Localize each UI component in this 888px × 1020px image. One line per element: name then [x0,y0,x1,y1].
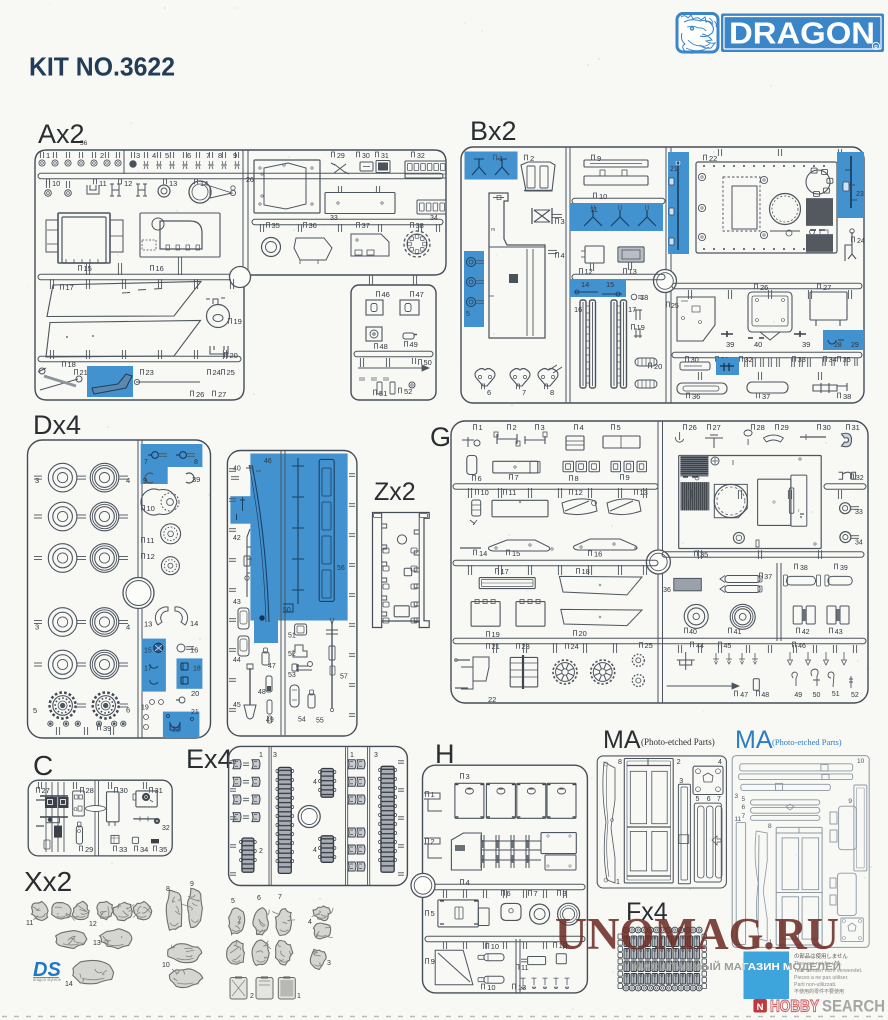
svg-text:3: 3 [136,151,140,160]
svg-text:4: 4 [313,779,317,786]
svg-text:4: 4 [313,847,317,854]
svg-text:2: 2 [513,423,517,432]
svg-text:6: 6 [487,388,491,397]
svg-text:m: m [491,227,495,233]
svg-text:1: 1 [479,423,483,432]
svg-text:4: 4 [580,423,584,432]
svg-text:2: 2 [677,759,681,766]
svg-text:38: 38 [416,221,424,230]
svg-text:1: 1 [297,993,301,1000]
svg-text:5: 5 [617,423,621,432]
svg-text:46: 46 [798,643,806,650]
svg-text:26: 26 [689,423,697,432]
svg-text:35: 35 [272,221,280,230]
svg-text:26: 26 [196,390,204,399]
svg-text:27: 27 [713,423,721,432]
svg-text:7: 7 [522,388,526,397]
svg-text:10: 10 [487,983,495,992]
svg-text:(Photo-etched Parts): (Photo-etched Parts) [772,737,842,747]
svg-text:42: 42 [233,535,241,542]
svg-text:Xx2: Xx2 [24,866,72,897]
svg-text:39: 39 [802,340,810,349]
svg-text:29: 29 [781,423,789,432]
svg-text:18: 18 [68,360,76,369]
svg-text:15: 15 [84,264,92,273]
svg-text:9: 9 [597,154,601,163]
svg-text:51: 51 [379,389,387,398]
svg-text:30: 30 [691,355,699,364]
svg-text:G: G [430,422,451,452]
svg-text:44: 44 [233,657,241,664]
svg-text:21: 21 [191,709,199,716]
svg-text:21: 21 [492,642,500,651]
svg-text:6: 6 [507,889,511,898]
svg-text:46: 46 [382,290,390,299]
svg-text:UNOMAG.RU: UNOMAG.RU [555,909,839,959]
svg-text:33: 33 [855,509,863,516]
svg-text:7: 7 [144,459,148,466]
svg-text:31: 31 [381,153,389,160]
svg-text:10: 10 [147,504,155,513]
svg-text:8: 8 [575,474,579,483]
svg-text:44: 44 [696,643,704,650]
svg-text:9: 9 [233,151,237,160]
svg-text:11: 11 [590,205,598,214]
svg-text:34: 34 [430,215,438,222]
svg-text:25: 25 [645,641,653,650]
svg-text:5: 5 [165,151,169,160]
svg-text:3: 3 [374,752,378,759]
svg-text:3: 3 [466,772,470,781]
svg-text:MA: MA [603,726,641,754]
svg-text:16: 16 [156,264,164,273]
svg-text:12: 12 [124,179,132,188]
svg-text:3: 3 [327,960,331,967]
svg-text:13: 13 [144,620,152,629]
svg-text:N: N [757,1002,764,1013]
svg-text:R: R [874,45,878,51]
svg-text:19: 19 [637,323,645,332]
svg-text:29: 29 [851,342,859,349]
svg-text:14: 14 [479,549,487,558]
svg-text:11: 11 [735,816,742,823]
svg-text:24: 24 [857,238,865,245]
svg-text:6: 6 [187,151,191,160]
svg-text:36: 36 [692,392,700,401]
svg-text:39: 39 [192,475,200,484]
svg-text:6: 6 [478,474,482,483]
svg-text:19: 19 [234,317,242,326]
svg-text:39: 39 [840,565,848,572]
svg-text:28: 28 [834,342,842,349]
svg-text:48: 48 [761,692,769,699]
svg-text:Zx2: Zx2 [374,478,416,506]
svg-text:1: 1 [259,752,263,759]
svg-text:45: 45 [233,702,241,709]
svg-text:10: 10 [491,942,499,951]
svg-text:54: 54 [298,717,306,724]
svg-text:42: 42 [802,629,810,636]
svg-text:7: 7 [278,894,282,901]
svg-text:39: 39 [726,340,734,349]
svg-text:DRAGON: DRAGON [729,16,875,51]
svg-text:3: 3 [541,423,545,432]
svg-text:МАСШТАБНЫЙ МАГАЗИН МОДЕЛЕЙ: МАСШТАБНЫЙ МАГАЗИН МОДЕЛЕЙ [633,960,841,973]
svg-text:33: 33 [330,215,338,222]
svg-text:19: 19 [141,705,149,712]
svg-text:Pieces a ne pas utiliser.: Pieces a ne pas utiliser. [794,975,849,981]
svg-text:33: 33 [798,355,806,364]
svg-text:23: 23 [522,642,530,651]
svg-text:43: 43 [835,629,843,636]
svg-text:4: 4 [466,878,470,887]
svg-text:4: 4 [126,476,130,485]
svg-text:46: 46 [264,458,272,465]
svg-text:35: 35 [843,355,851,364]
svg-text:Dx4: Dx4 [33,410,81,440]
svg-text:3: 3 [35,623,39,632]
svg-text:36: 36 [309,221,317,230]
svg-text:10: 10 [599,192,607,201]
svg-text:不使用的零件不要使用: 不使用的零件不要使用 [794,988,844,995]
svg-text:4: 4 [308,919,312,926]
svg-text:1: 1 [499,154,503,163]
svg-text:SEARCH: SEARCH [822,997,885,1016]
svg-text:49: 49 [794,692,802,699]
svg-text:1: 1 [350,752,354,759]
svg-text:34: 34 [829,355,837,364]
svg-text:11: 11 [509,488,517,497]
svg-text:(Photo-etched Parts): (Photo-etched Parts) [641,737,715,747]
svg-text:1: 1 [616,879,620,886]
svg-text:31: 31 [852,423,860,432]
svg-text:5: 5 [742,796,746,803]
svg-text:7: 7 [206,151,210,160]
svg-text:47: 47 [740,692,748,699]
svg-text:3: 3 [273,752,277,759]
svg-text:55: 55 [316,718,324,725]
svg-text:7: 7 [515,473,519,482]
svg-text:MA: MA [735,726,773,754]
svg-text:30: 30 [362,153,370,160]
svg-text:35: 35 [159,845,167,854]
svg-text:11: 11 [147,536,155,545]
svg-text:1: 1 [431,790,435,799]
svg-text:14: 14 [65,981,73,988]
svg-text:16: 16 [574,305,582,314]
svg-text:18: 18 [193,666,201,673]
svg-text:47: 47 [416,290,424,299]
svg-text:27: 27 [823,283,831,292]
svg-text:50: 50 [813,692,821,699]
svg-text:41: 41 [734,629,742,636]
svg-text:50: 50 [283,607,291,614]
svg-text:7: 7 [742,813,746,820]
svg-text:20: 20 [191,689,199,698]
svg-text:4: 4 [718,759,722,766]
svg-text:10: 10 [162,962,170,969]
svg-text:4: 4 [126,623,130,632]
svg-text:32: 32 [745,355,753,364]
svg-text:5: 5 [231,898,235,905]
svg-text:Ex4: Ex4 [186,744,233,774]
svg-text:15: 15 [606,280,614,289]
svg-text:10: 10 [52,179,60,188]
svg-text:2: 2 [100,151,104,160]
svg-text:25: 25 [227,368,235,377]
svg-text:56: 56 [337,565,345,572]
svg-text:51: 51 [832,691,840,698]
svg-text:38: 38 [843,392,851,401]
svg-text:30: 30 [120,786,128,795]
svg-text:6: 6 [742,804,746,811]
svg-text:C: C [33,750,53,781]
svg-text:10: 10 [857,758,865,765]
svg-text:24: 24 [213,368,221,377]
svg-text:4: 4 [152,151,156,160]
svg-text:12: 12 [575,488,583,497]
svg-text:KIT NO.3622: KIT NO.3622 [29,52,175,82]
svg-text:14: 14 [190,619,198,628]
svg-text:20: 20 [230,351,238,360]
svg-text:29: 29 [337,153,345,160]
svg-text:23: 23 [856,191,864,198]
svg-text:2: 2 [250,993,254,1000]
svg-text:8: 8 [194,459,198,466]
svg-text:24: 24 [571,642,579,651]
svg-text:9: 9 [431,957,435,966]
svg-text:49: 49 [410,340,418,349]
svg-text:32: 32 [162,825,170,832]
svg-text:16: 16 [594,550,602,559]
svg-text:57: 57 [340,674,348,681]
svg-text:Parti non-utilizzati.: Parti non-utilizzati. [794,982,836,988]
svg-text:32: 32 [417,153,425,160]
svg-text:43: 43 [233,599,241,606]
svg-text:50: 50 [424,358,432,367]
svg-text:5: 5 [696,796,700,803]
svg-text:22: 22 [488,695,496,704]
svg-text:18: 18 [640,293,648,302]
svg-text:40: 40 [754,340,762,349]
svg-text:13: 13 [93,940,101,947]
svg-text:8: 8 [166,886,170,893]
svg-text:9: 9 [190,881,194,888]
svg-text:9: 9 [143,476,147,485]
svg-text:3: 3 [735,793,739,800]
svg-text:37: 37 [764,574,772,581]
svg-text:8: 8 [550,388,554,397]
svg-text:20: 20 [579,629,587,638]
svg-text:2: 2 [259,848,263,855]
svg-text:3: 3 [35,476,39,485]
svg-text:53: 53 [288,672,296,679]
svg-text:30: 30 [823,423,831,432]
svg-text:36: 36 [663,587,671,594]
svg-text:5: 5 [431,909,435,918]
svg-text:6: 6 [257,895,261,902]
svg-text:48: 48 [258,689,266,696]
svg-text:HOBBY: HOBBY [770,997,820,1016]
svg-text:10: 10 [481,488,489,497]
svg-text:25: 25 [671,303,679,310]
svg-text:15: 15 [144,647,152,654]
svg-text:1: 1 [46,151,50,160]
svg-text:38: 38 [800,565,808,572]
svg-text:28: 28 [757,423,765,432]
svg-text:33: 33 [119,845,127,854]
svg-text:12: 12 [89,921,97,928]
svg-text:8: 8 [218,151,222,160]
svg-text:5: 5 [466,311,470,318]
svg-text:6: 6 [707,796,711,803]
svg-text:11: 11 [26,920,33,927]
svg-text:27: 27 [218,390,226,399]
svg-text:9: 9 [626,473,630,482]
svg-text:8: 8 [768,823,772,830]
svg-text:29: 29 [85,845,93,854]
svg-text:21: 21 [80,368,88,377]
svg-text:19: 19 [492,630,500,639]
svg-text:8: 8 [618,759,622,766]
svg-text:34: 34 [855,540,863,547]
svg-text:3: 3 [561,217,565,226]
svg-text:45: 45 [724,643,732,650]
svg-text:11: 11 [99,179,107,188]
svg-text:Ax2: Ax2 [38,119,85,149]
svg-text:4: 4 [561,251,565,260]
svg-text:28: 28 [86,786,94,795]
svg-text:15: 15 [512,549,520,558]
svg-text:21: 21 [670,166,678,173]
svg-text:26: 26 [246,177,254,184]
svg-text:48: 48 [380,342,388,351]
svg-text:26: 26 [760,283,768,292]
svg-text:37: 37 [362,221,370,230]
svg-text:56: 56 [80,140,88,147]
svg-text:Bx2: Bx2 [470,116,517,146]
svg-text:5: 5 [33,706,37,715]
svg-text:7: 7 [717,796,721,803]
svg-text:14: 14 [581,280,589,289]
svg-text:23: 23 [146,368,154,377]
svg-text:52: 52 [851,692,859,699]
svg-text:20: 20 [654,362,662,371]
svg-text:40: 40 [689,629,697,636]
svg-text:7: 7 [534,889,538,898]
svg-text:9: 9 [848,798,852,805]
svg-text:32: 32 [856,475,864,482]
svg-text:12: 12 [147,552,155,561]
svg-text:34: 34 [140,845,148,854]
svg-text:13: 13 [169,179,177,188]
